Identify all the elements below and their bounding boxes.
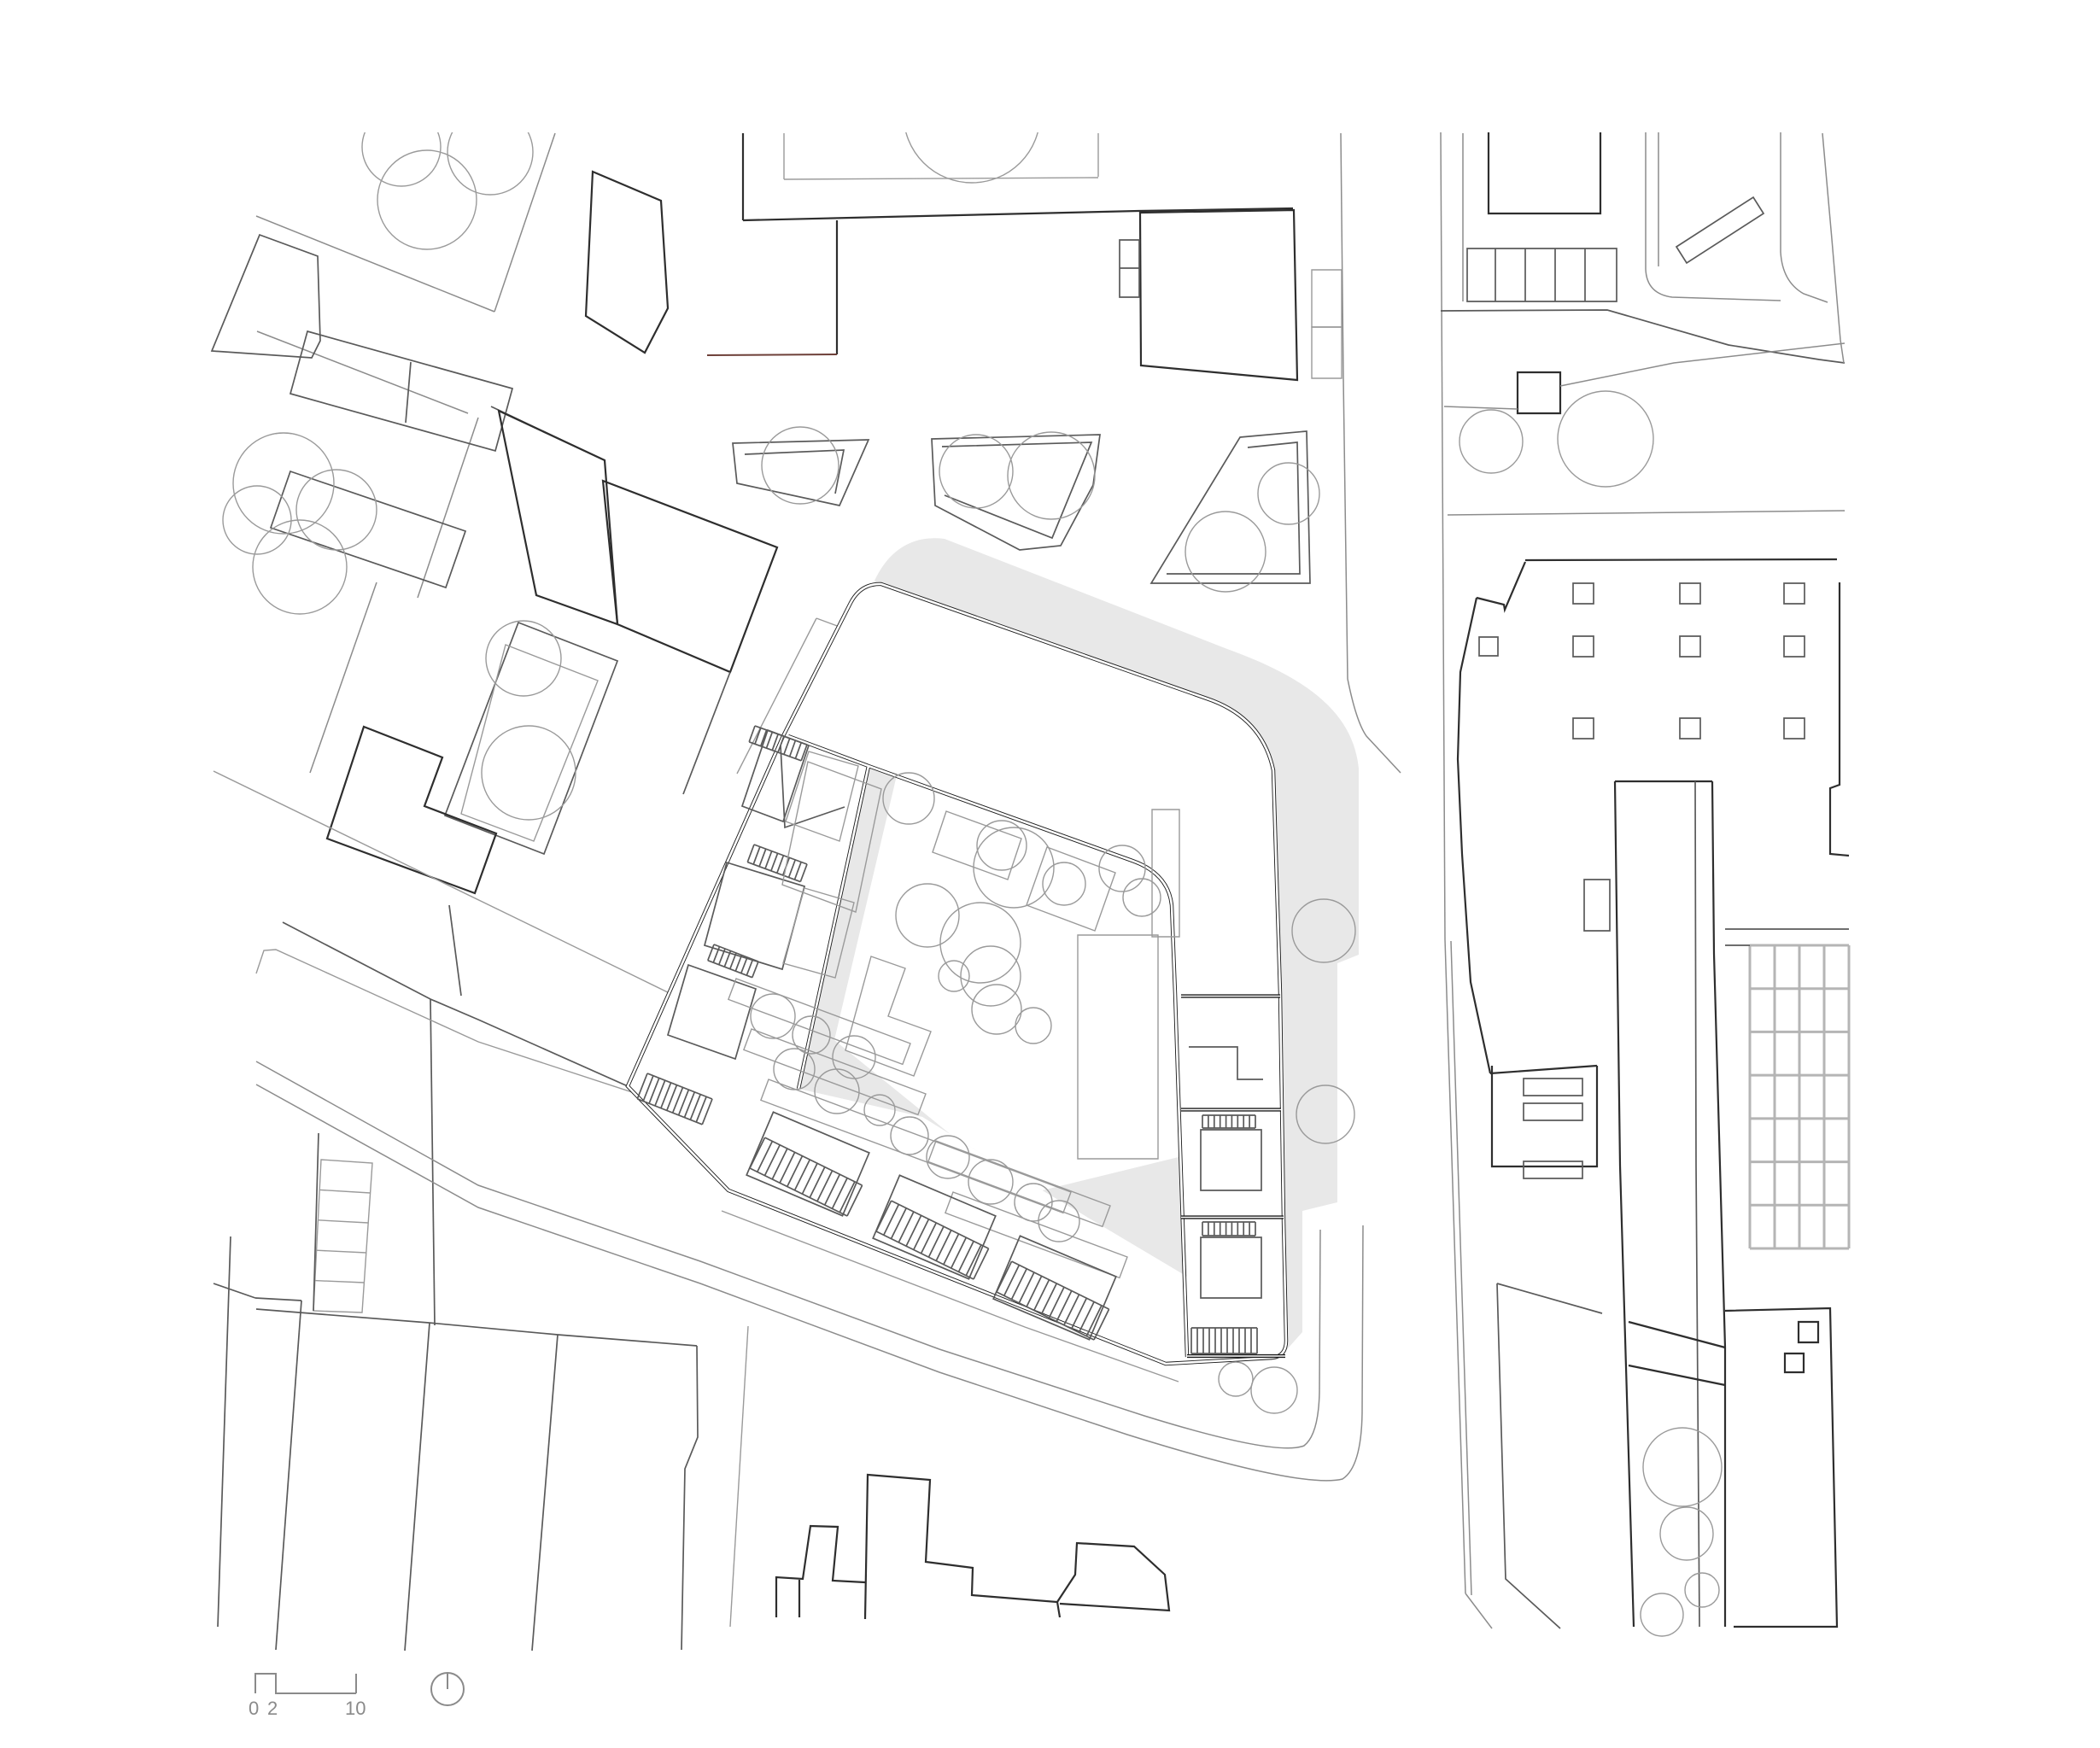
svg-text:0: 0 — [249, 1698, 259, 1719]
svg-text:10: 10 — [345, 1698, 366, 1719]
svg-text:2: 2 — [267, 1698, 278, 1719]
